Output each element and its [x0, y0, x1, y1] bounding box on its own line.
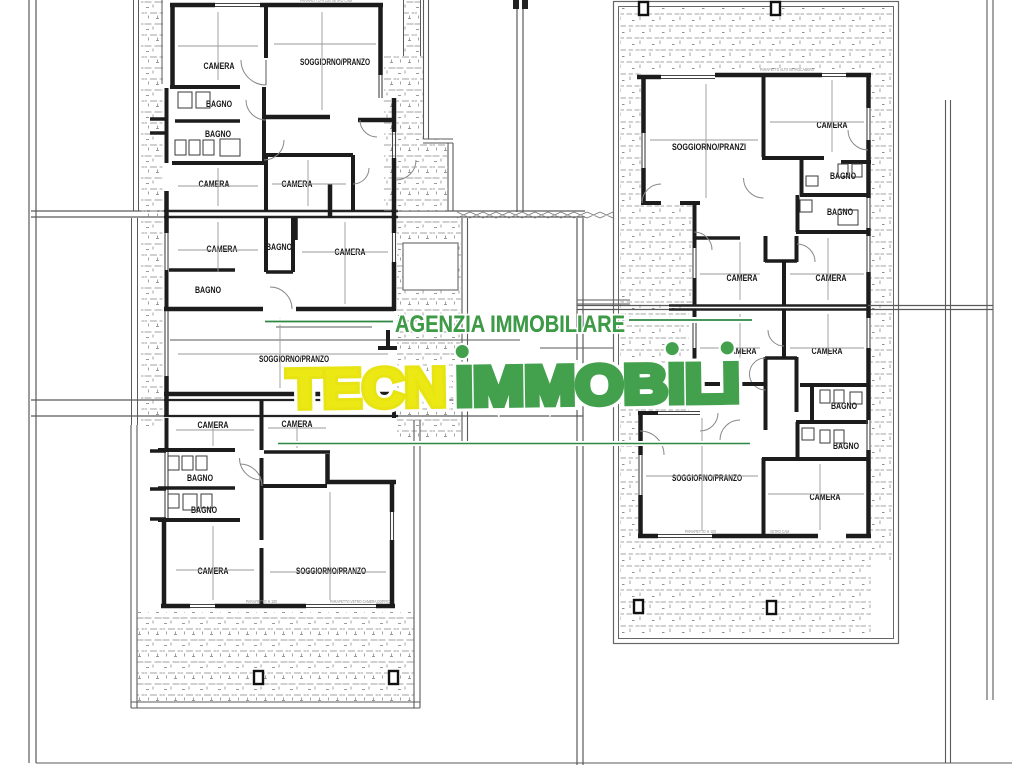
svg-text:VETRO CAM: VETRO CAM [770, 529, 789, 534]
svg-text:SOGGIORNO/PRANZI: SOGGIORNO/PRANZI [672, 142, 746, 152]
svg-text:CAMERA: CAMERA [727, 273, 758, 283]
svg-text:PARAPETTO VETRO CAMERA DOPPIO: PARAPETTO VETRO CAMERA DOPPIO [330, 599, 390, 604]
svg-text:BAGNO: BAGNO [205, 129, 231, 139]
svg-text:BAGNO: BAGNO [827, 207, 853, 217]
svg-text:PARAPETTO H 100 VETRO CAM: PARAPETTO H 100 VETRO CAM [300, 0, 352, 3]
svg-text:CAMERA: CAMERA [207, 244, 238, 254]
svg-text:CAMERA: CAMERA [812, 346, 843, 356]
svg-text:CAMERA: CAMERA [199, 179, 230, 189]
svg-text:CAMERA: CAMERA [810, 492, 841, 502]
svg-text:BAGNO: BAGNO [266, 242, 292, 252]
svg-text:TECN: TECN [286, 356, 447, 420]
svg-text:BAGNO: BAGNO [187, 473, 213, 483]
svg-text:CAMERA: CAMERA [816, 273, 847, 283]
svg-text:PARAPETTO ALTO VETROCAMERA: PARAPETTO ALTO VETROCAMERA [760, 67, 814, 72]
svg-text:SOGGIORNO/PRANZO: SOGGIORNO/PRANZO [300, 57, 370, 67]
svg-text:PARAPETTO H 100: PARAPETTO H 100 [685, 529, 716, 534]
svg-text:CAMERA: CAMERA [204, 61, 235, 71]
svg-text:BAGNO: BAGNO [195, 285, 221, 295]
svg-text:IMMOBILI: IMMOBILI [455, 352, 740, 418]
svg-text:AGENZIA IMMOBILIARE: AGENZIA IMMOBILIARE [395, 311, 625, 338]
svg-text:SOGGIORNO/PRANZO: SOGGIORNO/PRANZO [672, 473, 742, 483]
svg-text:PARAPETTO H 100: PARAPETTO H 100 [246, 599, 277, 604]
svg-text:SOGGIORNO/PRANZO: SOGGIORNO/PRANZO [296, 566, 366, 576]
